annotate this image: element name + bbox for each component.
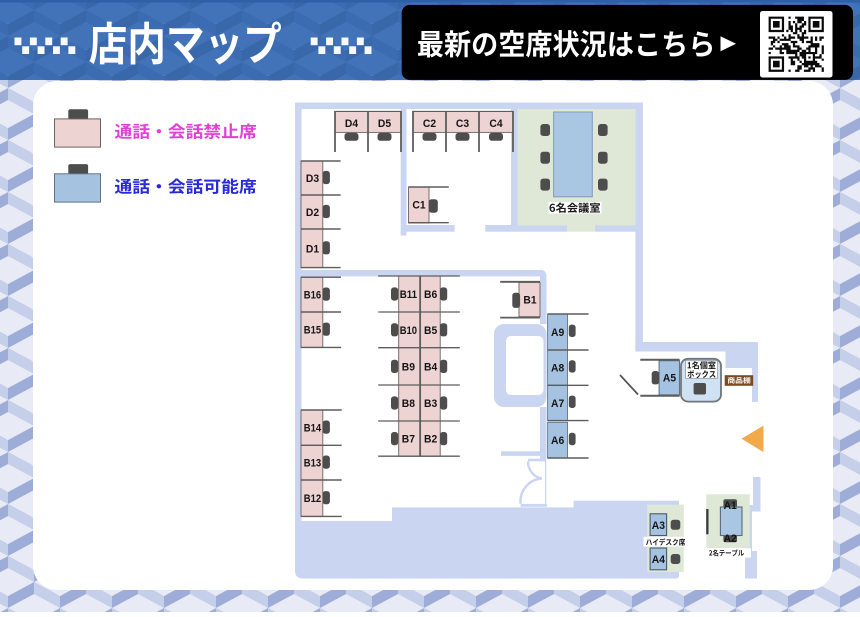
- svg-text:C4: C4: [489, 118, 503, 130]
- svg-text:B4: B4: [424, 361, 438, 373]
- svg-text:B11: B11: [400, 289, 417, 301]
- svg-text:C3: C3: [456, 118, 469, 130]
- svg-text:B6: B6: [424, 289, 437, 301]
- svg-text:D4: D4: [345, 118, 359, 130]
- svg-text:B3: B3: [424, 398, 437, 410]
- svg-text:B12: B12: [304, 493, 321, 505]
- svg-text:B10: B10: [400, 325, 417, 337]
- svg-text:B8: B8: [402, 398, 415, 410]
- svg-text:B16: B16: [304, 290, 321, 302]
- svg-text:B14: B14: [304, 423, 322, 435]
- svg-text:B9: B9: [402, 361, 415, 373]
- svg-text:B7: B7: [402, 434, 415, 446]
- svg-text:D3: D3: [306, 173, 319, 185]
- svg-text:A5: A5: [663, 373, 676, 385]
- svg-text:D1: D1: [306, 243, 319, 255]
- svg-text:B1: B1: [523, 294, 536, 306]
- svg-text:D2: D2: [306, 207, 319, 219]
- svg-text:A6: A6: [551, 435, 564, 447]
- svg-text:A2: A2: [724, 533, 737, 545]
- svg-text:B5: B5: [424, 325, 437, 337]
- svg-text:A4: A4: [652, 554, 666, 566]
- svg-text:A9: A9: [551, 327, 564, 339]
- svg-text:B13: B13: [304, 458, 321, 470]
- svg-text:B2: B2: [424, 434, 437, 446]
- svg-text:D5: D5: [378, 118, 391, 130]
- svg-text:C1: C1: [412, 200, 425, 212]
- svg-text:B15: B15: [304, 325, 321, 337]
- svg-text:A8: A8: [551, 363, 564, 375]
- svg-text:A1: A1: [724, 500, 737, 512]
- svg-text:A3: A3: [652, 520, 665, 532]
- svg-text:A7: A7: [551, 398, 564, 410]
- svg-text:C2: C2: [423, 118, 436, 130]
